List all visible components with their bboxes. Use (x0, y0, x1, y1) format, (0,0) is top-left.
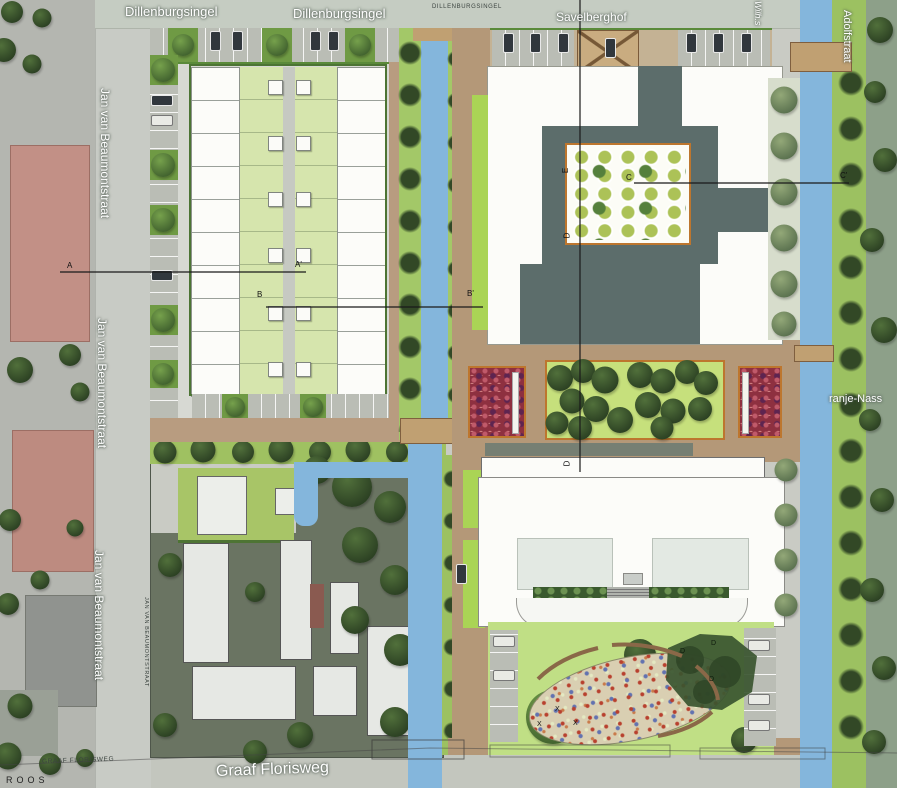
tree-icon (568, 416, 592, 440)
existing-building-red-roof (10, 145, 90, 342)
apartment-building-north-bar (481, 457, 765, 478)
car-icon (503, 33, 514, 53)
canal-pool (294, 462, 318, 526)
car-icon (748, 694, 770, 705)
tree-icon (870, 488, 894, 512)
plant-marker-d: D (711, 640, 716, 647)
street-label-wilhelmina-partial: Wilh.s (753, 1, 763, 25)
tree-icon (349, 34, 371, 56)
entrance-square (623, 573, 643, 585)
street-label-savelberghof: Savelberghof (556, 10, 627, 24)
plant-marker-d: D (680, 648, 685, 655)
facade-shadow-band (485, 443, 693, 456)
car-icon (748, 720, 770, 731)
tree-icon (154, 441, 177, 464)
tree-icon (245, 582, 265, 602)
car-icon (748, 640, 770, 651)
tree-icon (775, 459, 798, 482)
section-marker-c-prime: C' (840, 171, 847, 180)
canal-bridge-east-small (794, 345, 834, 362)
signature-roos: ROOS (6, 775, 49, 785)
tree-icon (8, 694, 33, 719)
tree-icon (303, 397, 323, 417)
car-icon (741, 33, 752, 53)
tree-icon (872, 656, 896, 680)
tree-icon (67, 520, 84, 537)
car-icon (686, 33, 697, 53)
car-icon (530, 33, 541, 53)
tree-icon (153, 713, 177, 737)
shed-building (275, 488, 295, 515)
tree-icon (547, 365, 573, 391)
tree-icon (172, 34, 194, 56)
section-marker-d-lower: D (562, 461, 571, 467)
tree-icon (651, 417, 674, 440)
tree-icon (771, 87, 798, 114)
tree-icon (71, 383, 90, 402)
inner-court-west (517, 538, 613, 590)
tree-icon (341, 606, 369, 634)
tree-row (398, 32, 422, 432)
canal-inner-lower (408, 440, 442, 788)
street-label-dillenburgsingel-1: Dillenburgsingel (125, 4, 218, 19)
section-marker-d-upper: D (562, 233, 571, 239)
tree-icon (859, 409, 881, 431)
street-label-jan-van-beaumontstraat-1: Jan van Beaumontstraat (98, 88, 112, 218)
car-icon (151, 95, 173, 106)
tree-icon (771, 133, 798, 160)
tree-icon (864, 81, 886, 103)
tree-icon (871, 317, 897, 343)
tree-icon (266, 34, 288, 56)
tree-icon (342, 527, 378, 563)
building-footprint (183, 543, 229, 663)
tree-icon (151, 308, 175, 332)
plant-marker-x: X (573, 720, 578, 727)
section-marker-a-prime: A' (295, 260, 302, 269)
tree-icon (862, 730, 886, 754)
building-footprint (192, 666, 296, 720)
street-label-dillenburgsingel-2: Dillenburgsingel (293, 6, 386, 21)
tree-icon (158, 553, 182, 577)
east-walk (768, 78, 802, 340)
plant-marker-x: X (537, 721, 542, 728)
bench-strip (742, 372, 749, 434)
tree-icon (775, 549, 798, 572)
tree-icon (1, 1, 23, 23)
tree-icon (546, 412, 569, 435)
car-icon (713, 33, 724, 53)
section-marker-c: C (626, 173, 632, 182)
shed-building (197, 476, 247, 535)
car-icon (493, 670, 515, 681)
tree-icon (31, 571, 50, 590)
tree-icon (374, 491, 406, 523)
savelberghof-dark-building (520, 264, 700, 344)
canal-east (800, 0, 832, 788)
tree-icon (380, 707, 410, 737)
tree-icon (873, 148, 897, 172)
tree-icon (151, 208, 175, 232)
tree-icon (860, 228, 884, 252)
tree-icon (23, 55, 42, 74)
tree-icon (860, 578, 884, 602)
red-roof-sliver (310, 584, 324, 628)
green-verge (472, 95, 488, 330)
tree-icon (59, 344, 81, 366)
tree-icon (627, 362, 653, 388)
car-icon (456, 564, 467, 584)
car-icon (605, 38, 616, 58)
tree-icon (287, 722, 313, 748)
tree-icon (694, 371, 718, 395)
car-icon (493, 636, 515, 647)
street-label-dillenburgsingel-caps: DILLENBURGSINGEL (432, 4, 502, 10)
courtyard-trees (570, 148, 686, 240)
tree-icon (635, 392, 661, 418)
street-label-jan-van-beaumontstraat-2: Jan van Beaumontstraat (95, 318, 109, 448)
car-icon (232, 31, 243, 51)
tree-icon (151, 153, 175, 177)
street-label-jan-caps: JAN VAN BEAUMONTSTRAAT (143, 597, 149, 687)
tree-icon (688, 397, 712, 421)
plant-marker-x: X (555, 706, 560, 713)
bench-strip (512, 372, 519, 434)
hedge-border (189, 64, 387, 396)
tree-icon (0, 509, 21, 531)
section-marker-b-prime: B' (467, 289, 474, 298)
tree-icon (380, 565, 410, 595)
tree-row (838, 60, 864, 750)
car-icon (151, 270, 173, 281)
site-plan: Dillenburgsingel Dillenburgsingel DILLEN… (0, 0, 897, 788)
savelberghof-dark-building (718, 188, 772, 232)
tree-icon (152, 363, 174, 385)
building-footprint (313, 666, 357, 716)
tree-icon (867, 17, 893, 43)
tree-icon (225, 397, 245, 417)
tree-icon (7, 357, 33, 383)
savelberghof-dark-building (638, 66, 682, 127)
tree-icon (386, 441, 408, 463)
tree-icon (151, 58, 175, 82)
tree-icon (560, 389, 585, 414)
building-footprint (280, 540, 312, 660)
tree-icon (771, 271, 798, 298)
tree-icon (771, 225, 798, 252)
tree-icon (651, 369, 676, 394)
tree-icon (232, 441, 254, 463)
tree-icon (771, 179, 798, 206)
section-marker-a: A (67, 261, 72, 270)
car-icon (310, 31, 321, 51)
tree-icon (592, 367, 619, 394)
courtyard-tree-grid (565, 143, 691, 245)
car-icon (558, 33, 569, 53)
street-label-jan-van-beaumontstraat-3: Jan van Beaumontstraat (92, 550, 106, 680)
car-icon (210, 31, 221, 51)
tree-icon (775, 504, 798, 527)
street-label-adolfstraat: Adolfstraat (841, 10, 853, 63)
plant-marker-d: D (709, 676, 714, 683)
tree-icon (33, 9, 52, 28)
car-icon (151, 115, 173, 126)
tree-icon (772, 312, 797, 337)
car-icon (328, 31, 339, 51)
section-marker-b: B (257, 290, 262, 299)
savelberghof-dark-building (690, 145, 718, 235)
existing-building-red-roof (12, 430, 94, 572)
savelberghof-dark-building (580, 243, 690, 265)
tree-icon (775, 594, 798, 617)
tree-icon (607, 407, 633, 433)
street-label-oranje-nassau: ranje-Nass (829, 393, 882, 405)
canal-inner (421, 28, 448, 442)
section-marker-e: E (561, 168, 570, 173)
inner-court-east (652, 538, 749, 590)
